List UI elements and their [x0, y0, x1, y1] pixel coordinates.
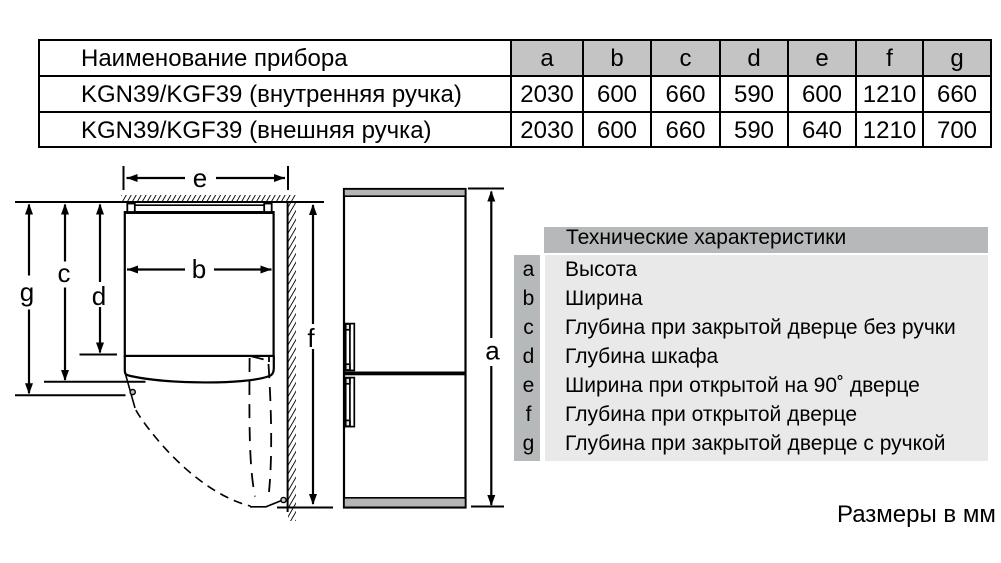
svg-text:a: a — [485, 336, 500, 366]
svg-text:f: f — [307, 323, 315, 353]
svg-text:c: c — [58, 258, 71, 288]
svg-text:b: b — [192, 254, 206, 284]
svg-text:g: g — [20, 277, 34, 307]
svg-text:e: e — [193, 163, 207, 193]
svg-text:d: d — [92, 281, 106, 311]
